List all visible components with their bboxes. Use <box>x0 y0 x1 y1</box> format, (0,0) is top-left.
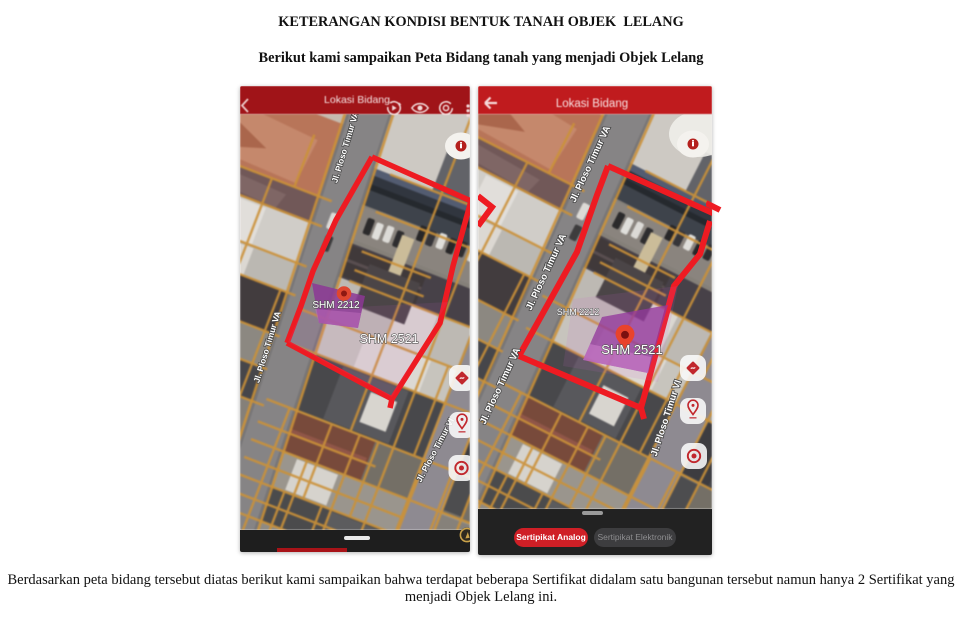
svg-text:Lokasi Bidang: Lokasi Bidang <box>556 98 628 110</box>
svg-text:Jl. Ploso Timur VA: Jl. Ploso Timur VA <box>251 310 282 384</box>
svg-text:Lokasi Bidang: Lokasi Bidang <box>324 94 390 106</box>
svg-text:Jl. Ploso Timur VI: Jl. Ploso Timur VI <box>649 379 684 458</box>
svg-text:Jl. Ploso Timur VA: Jl. Ploso Timur VA <box>329 114 360 184</box>
svg-text:SHM 2212: SHM 2212 <box>557 307 600 317</box>
svg-text:SHM 2521: SHM 2521 <box>359 332 418 346</box>
svg-text:SHM 2212: SHM 2212 <box>312 300 360 311</box>
svg-text:SHM 2521: SHM 2521 <box>601 342 662 357</box>
svg-text:Jl. Ploso Timur VA: Jl. Ploso Timur VA <box>524 232 569 312</box>
svg-text:Jl. Ploso Timur VA: Jl. Ploso Timur VA <box>568 124 613 204</box>
svg-text:Jl. Ploso Timur VA: Jl. Ploso Timur VA <box>478 346 523 426</box>
